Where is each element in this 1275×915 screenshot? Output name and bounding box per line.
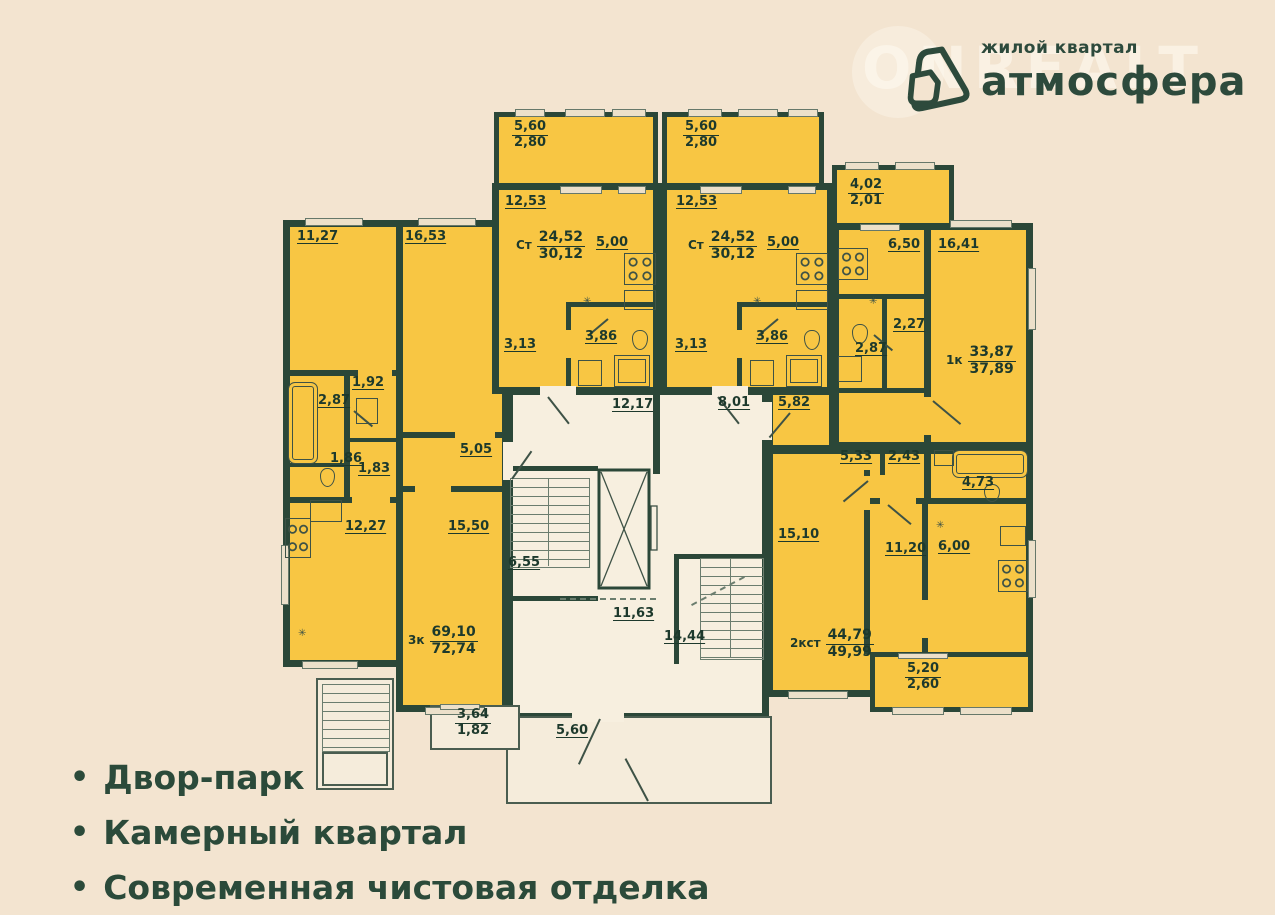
window bbox=[960, 707, 1012, 715]
window bbox=[738, 109, 778, 117]
apartment-type: Ст bbox=[688, 239, 704, 253]
washer-icon bbox=[838, 356, 862, 382]
stove-icon bbox=[838, 248, 868, 280]
living-area: 24,52 bbox=[537, 230, 585, 247]
total-area: 30,12 bbox=[711, 247, 755, 263]
total-area: 49,99 bbox=[828, 645, 872, 661]
room-area-label: 1,83 bbox=[358, 462, 390, 477]
atmosfera-logo-icon bbox=[905, 38, 971, 114]
wall bbox=[653, 388, 660, 474]
apartment-areas: 24,52 30,12 bbox=[537, 230, 585, 262]
living-area: 69,10 bbox=[430, 625, 478, 642]
stove-icon bbox=[285, 518, 311, 558]
window bbox=[612, 109, 646, 117]
bullet-icon: • bbox=[70, 760, 89, 795]
balcony-area-label: 5,20 2,60 bbox=[905, 662, 941, 692]
room-area-label: 12,53 bbox=[676, 195, 717, 210]
room-area-label: 5,00 bbox=[767, 236, 799, 251]
common-area-label: 5,60 bbox=[556, 724, 588, 739]
sink-icon bbox=[1000, 526, 1026, 546]
apartment-summary-label: 1к 33,87 37,89 bbox=[946, 345, 1016, 377]
door-opening bbox=[352, 497, 390, 503]
dashed-line bbox=[560, 598, 656, 600]
apartment-type: 1к bbox=[946, 354, 963, 368]
window bbox=[618, 186, 646, 194]
door-opening bbox=[712, 386, 748, 395]
total-area: 30,12 bbox=[539, 247, 583, 263]
door-opening bbox=[924, 397, 931, 435]
brand-logo: жилой квартал атмосфера bbox=[905, 38, 1247, 114]
room-area-label: 15,10 bbox=[778, 528, 819, 543]
vent-icon: ✳ bbox=[936, 520, 944, 531]
room-area-label: 4,73 bbox=[962, 476, 994, 491]
living-area: 24,52 bbox=[709, 230, 757, 247]
sink-icon bbox=[796, 290, 828, 310]
door-opening bbox=[922, 600, 928, 638]
brand-text: жилой квартал атмосфера bbox=[981, 38, 1247, 105]
balcony-half: 2,60 bbox=[907, 678, 939, 693]
elevator-icon bbox=[597, 468, 659, 600]
balcony-area-label: 5,60 2,80 bbox=[683, 120, 719, 150]
apartment-type: Ст bbox=[516, 239, 532, 253]
window bbox=[892, 707, 944, 715]
vent-icon: ✳ bbox=[298, 628, 306, 639]
room-area-label: 3,86 bbox=[585, 330, 617, 345]
window bbox=[565, 109, 605, 117]
feature-item: • Камерный квартал bbox=[70, 805, 710, 860]
features-list: • Двор-парк • Камерный квартал • Совреме… bbox=[70, 750, 710, 915]
feature-item: • Двор-парк bbox=[70, 750, 710, 805]
brand-tagline: жилой квартал bbox=[981, 38, 1247, 58]
balcony-half: 2,80 bbox=[514, 136, 546, 151]
wall bbox=[832, 294, 929, 299]
room-area-label: 2,87 bbox=[318, 394, 350, 409]
feature-text: Современная чистовая отделка bbox=[103, 868, 709, 907]
stove-icon bbox=[624, 253, 656, 285]
room-area-label: 2,27 bbox=[893, 318, 925, 333]
window bbox=[560, 186, 602, 194]
apartment-type: 3к bbox=[408, 634, 425, 648]
room-area-label: 3,13 bbox=[504, 338, 536, 353]
wall bbox=[924, 447, 931, 502]
total-area: 37,89 bbox=[970, 362, 1014, 378]
room-area-label: 5,33 bbox=[840, 450, 872, 465]
balcony-full: 4,02 bbox=[848, 178, 884, 194]
window bbox=[305, 218, 363, 226]
balcony-half: 2,01 bbox=[850, 194, 882, 209]
door-opening bbox=[540, 386, 576, 395]
room-area-label: 16,41 bbox=[938, 238, 979, 253]
common-area-label: 11,63 bbox=[613, 607, 654, 622]
shower-icon bbox=[614, 355, 650, 387]
balcony-area-label: 3,64 1,82 bbox=[455, 708, 491, 738]
stairs-axis bbox=[548, 478, 549, 566]
stove-icon bbox=[998, 560, 1028, 592]
room-area-label: 6,00 bbox=[938, 540, 970, 555]
window bbox=[302, 661, 358, 669]
bathtub-icon bbox=[288, 382, 318, 464]
window bbox=[860, 224, 900, 231]
washer-icon bbox=[750, 360, 774, 386]
washer-icon bbox=[310, 500, 342, 522]
shower-icon bbox=[786, 355, 822, 387]
apartment-summary-label: Ст 24,52 30,12 bbox=[688, 230, 757, 262]
feature-text: Двор-парк bbox=[103, 758, 304, 797]
apartment-type: 2кст bbox=[790, 637, 821, 651]
vent-icon: ✳ bbox=[753, 296, 761, 307]
common-area-label: 6,55 bbox=[508, 556, 540, 571]
common-area-label: 8,01 bbox=[718, 396, 750, 411]
balcony-full: 5,60 bbox=[512, 120, 548, 136]
room-area-label: 5,00 bbox=[596, 236, 628, 251]
balcony-area-label: 5,60 2,80 bbox=[512, 120, 548, 150]
room-area-label: 12,27 bbox=[345, 520, 386, 535]
window bbox=[845, 162, 879, 170]
stove-icon bbox=[796, 253, 828, 285]
apartment-summary-label: 2кст 44,79 49,99 bbox=[790, 628, 874, 660]
sink-icon bbox=[356, 398, 378, 424]
room-area-label: 3,86 bbox=[756, 330, 788, 345]
wall bbox=[674, 554, 679, 664]
bullet-icon: • bbox=[70, 815, 89, 850]
vent-icon: ✳ bbox=[583, 296, 591, 307]
door-opening bbox=[737, 330, 742, 358]
apartment-areas: 24,52 30,12 bbox=[709, 230, 757, 262]
balcony-half: 2,80 bbox=[685, 136, 717, 151]
door-opening bbox=[503, 442, 513, 480]
room-area-label: 11,27 bbox=[297, 230, 338, 245]
door-opening bbox=[455, 432, 495, 438]
window bbox=[515, 109, 545, 117]
living-area: 44,79 bbox=[826, 628, 874, 645]
living-area: 33,87 bbox=[968, 345, 1016, 362]
door-opening bbox=[566, 330, 571, 358]
room-area-label: 2,43 bbox=[888, 450, 920, 465]
common-area-label: 12,17 bbox=[612, 398, 653, 413]
room-area-label: 5,05 bbox=[460, 443, 492, 458]
sink-icon bbox=[624, 290, 656, 310]
balcony-full: 5,60 bbox=[683, 120, 719, 136]
window bbox=[418, 218, 476, 226]
apartment-areas: 69,10 72,74 bbox=[430, 625, 478, 657]
balcony-2k bbox=[870, 652, 1033, 712]
window bbox=[895, 162, 935, 170]
room-area-label: 15,50 bbox=[448, 520, 489, 535]
window bbox=[788, 691, 848, 699]
window bbox=[1028, 540, 1036, 598]
washer-icon bbox=[578, 360, 602, 386]
balcony-full: 3,64 bbox=[455, 708, 491, 724]
page: { "watermark": "ONREALT", "logo": { "tag… bbox=[0, 0, 1275, 910]
room-area-label: 3,13 bbox=[675, 338, 707, 353]
bathtub-icon bbox=[952, 450, 1028, 478]
stairs-icon bbox=[322, 684, 390, 752]
window bbox=[700, 186, 742, 194]
room-area-label: 1,92 bbox=[352, 376, 384, 391]
bullet-icon: • bbox=[70, 870, 89, 905]
room-area-label: 16,53 bbox=[405, 230, 446, 245]
window bbox=[688, 109, 722, 117]
window bbox=[788, 109, 818, 117]
sink-icon bbox=[934, 450, 954, 466]
stairs-axis bbox=[730, 558, 731, 658]
apartment-summary-label: Ст 24,52 30,12 bbox=[516, 230, 585, 262]
common-area-label: 14,44 bbox=[664, 630, 705, 645]
door-opening bbox=[415, 486, 451, 492]
room-area-label: 11,20 bbox=[885, 542, 926, 557]
apartment-areas: 44,79 49,99 bbox=[826, 628, 874, 660]
apartment-summary-label: 3к 69,10 72,74 bbox=[408, 625, 478, 657]
feature-item: • Современная чистовая отделка bbox=[70, 860, 710, 915]
wall bbox=[348, 438, 398, 442]
window bbox=[950, 220, 1012, 228]
room-area-label: 5,82 bbox=[778, 396, 810, 411]
window bbox=[1028, 268, 1036, 330]
room-area-label: 2,87 bbox=[855, 342, 887, 357]
stairs-icon bbox=[700, 558, 764, 660]
balcony-area-label: 4,02 2,01 bbox=[848, 178, 884, 208]
room-area-label: 6,50 bbox=[888, 238, 920, 253]
balcony-full: 5,20 bbox=[905, 662, 941, 678]
window bbox=[788, 186, 816, 194]
wall bbox=[344, 370, 350, 503]
total-area: 72,74 bbox=[432, 642, 476, 658]
wall bbox=[880, 447, 885, 475]
door-opening bbox=[880, 498, 916, 504]
wall bbox=[832, 388, 929, 393]
apartment-areas: 33,87 37,89 bbox=[968, 345, 1016, 377]
window bbox=[898, 653, 948, 659]
balcony-half: 1,82 bbox=[457, 724, 489, 739]
vent-icon: ✳ bbox=[869, 296, 877, 307]
brand-name: атмосфера bbox=[981, 59, 1247, 105]
room-area-label: 12,53 bbox=[505, 195, 546, 210]
feature-text: Камерный квартал bbox=[103, 813, 467, 852]
